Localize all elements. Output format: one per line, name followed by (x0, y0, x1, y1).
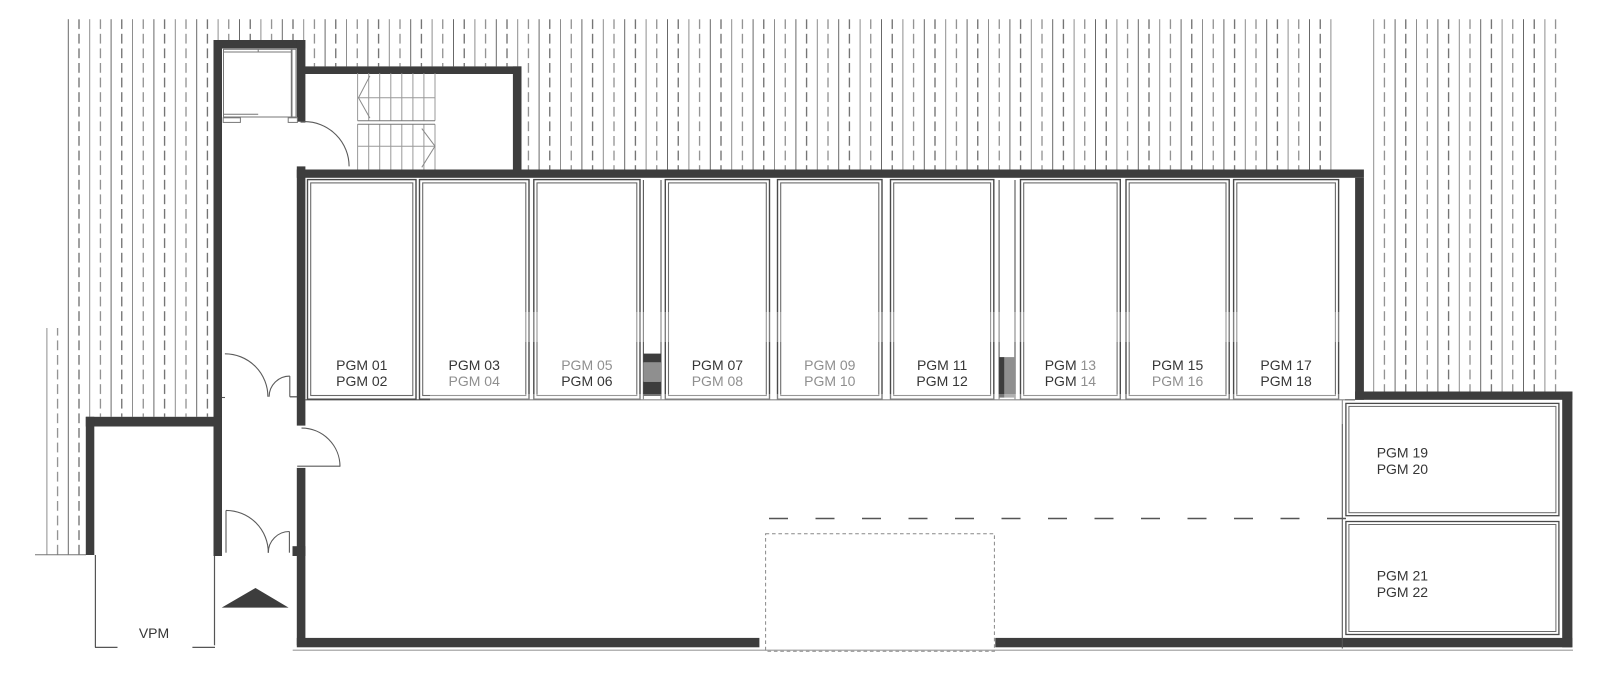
svg-text:PGM 05: PGM 05 (561, 357, 613, 373)
svg-text:PGM 18: PGM 18 (1260, 373, 1312, 389)
svg-text:PGM 10: PGM 10 (804, 373, 856, 389)
svg-text:PGM 20: PGM 20 (1377, 461, 1429, 477)
svg-text:PGM 04: PGM 04 (449, 373, 501, 389)
svg-text:PGM 03: PGM 03 (449, 357, 501, 373)
svg-text:PGM 14: PGM 14 (1045, 373, 1097, 389)
svg-text:PGM 16: PGM 16 (1152, 373, 1204, 389)
svg-text:PGM 09: PGM 09 (804, 357, 856, 373)
svg-text:PGM 12: PGM 12 (916, 373, 968, 389)
svg-text:PGM 13: PGM 13 (1045, 357, 1097, 373)
svg-text:VPM: VPM (139, 625, 169, 641)
svg-text:PGM 06: PGM 06 (561, 373, 613, 389)
svg-text:PGM 19: PGM 19 (1377, 445, 1429, 461)
svg-text:PGM 08: PGM 08 (692, 373, 744, 389)
svg-text:PGM 15: PGM 15 (1152, 357, 1204, 373)
svg-text:PGM 21: PGM 21 (1377, 568, 1429, 584)
svg-text:PGM 02: PGM 02 (336, 373, 388, 389)
svg-text:PGM 07: PGM 07 (692, 357, 744, 373)
svg-text:PGM 17: PGM 17 (1260, 357, 1312, 373)
svg-text:PGM 11: PGM 11 (917, 357, 968, 373)
svg-text:PGM 01: PGM 01 (336, 357, 388, 373)
svg-text:PGM 22: PGM 22 (1377, 584, 1429, 600)
